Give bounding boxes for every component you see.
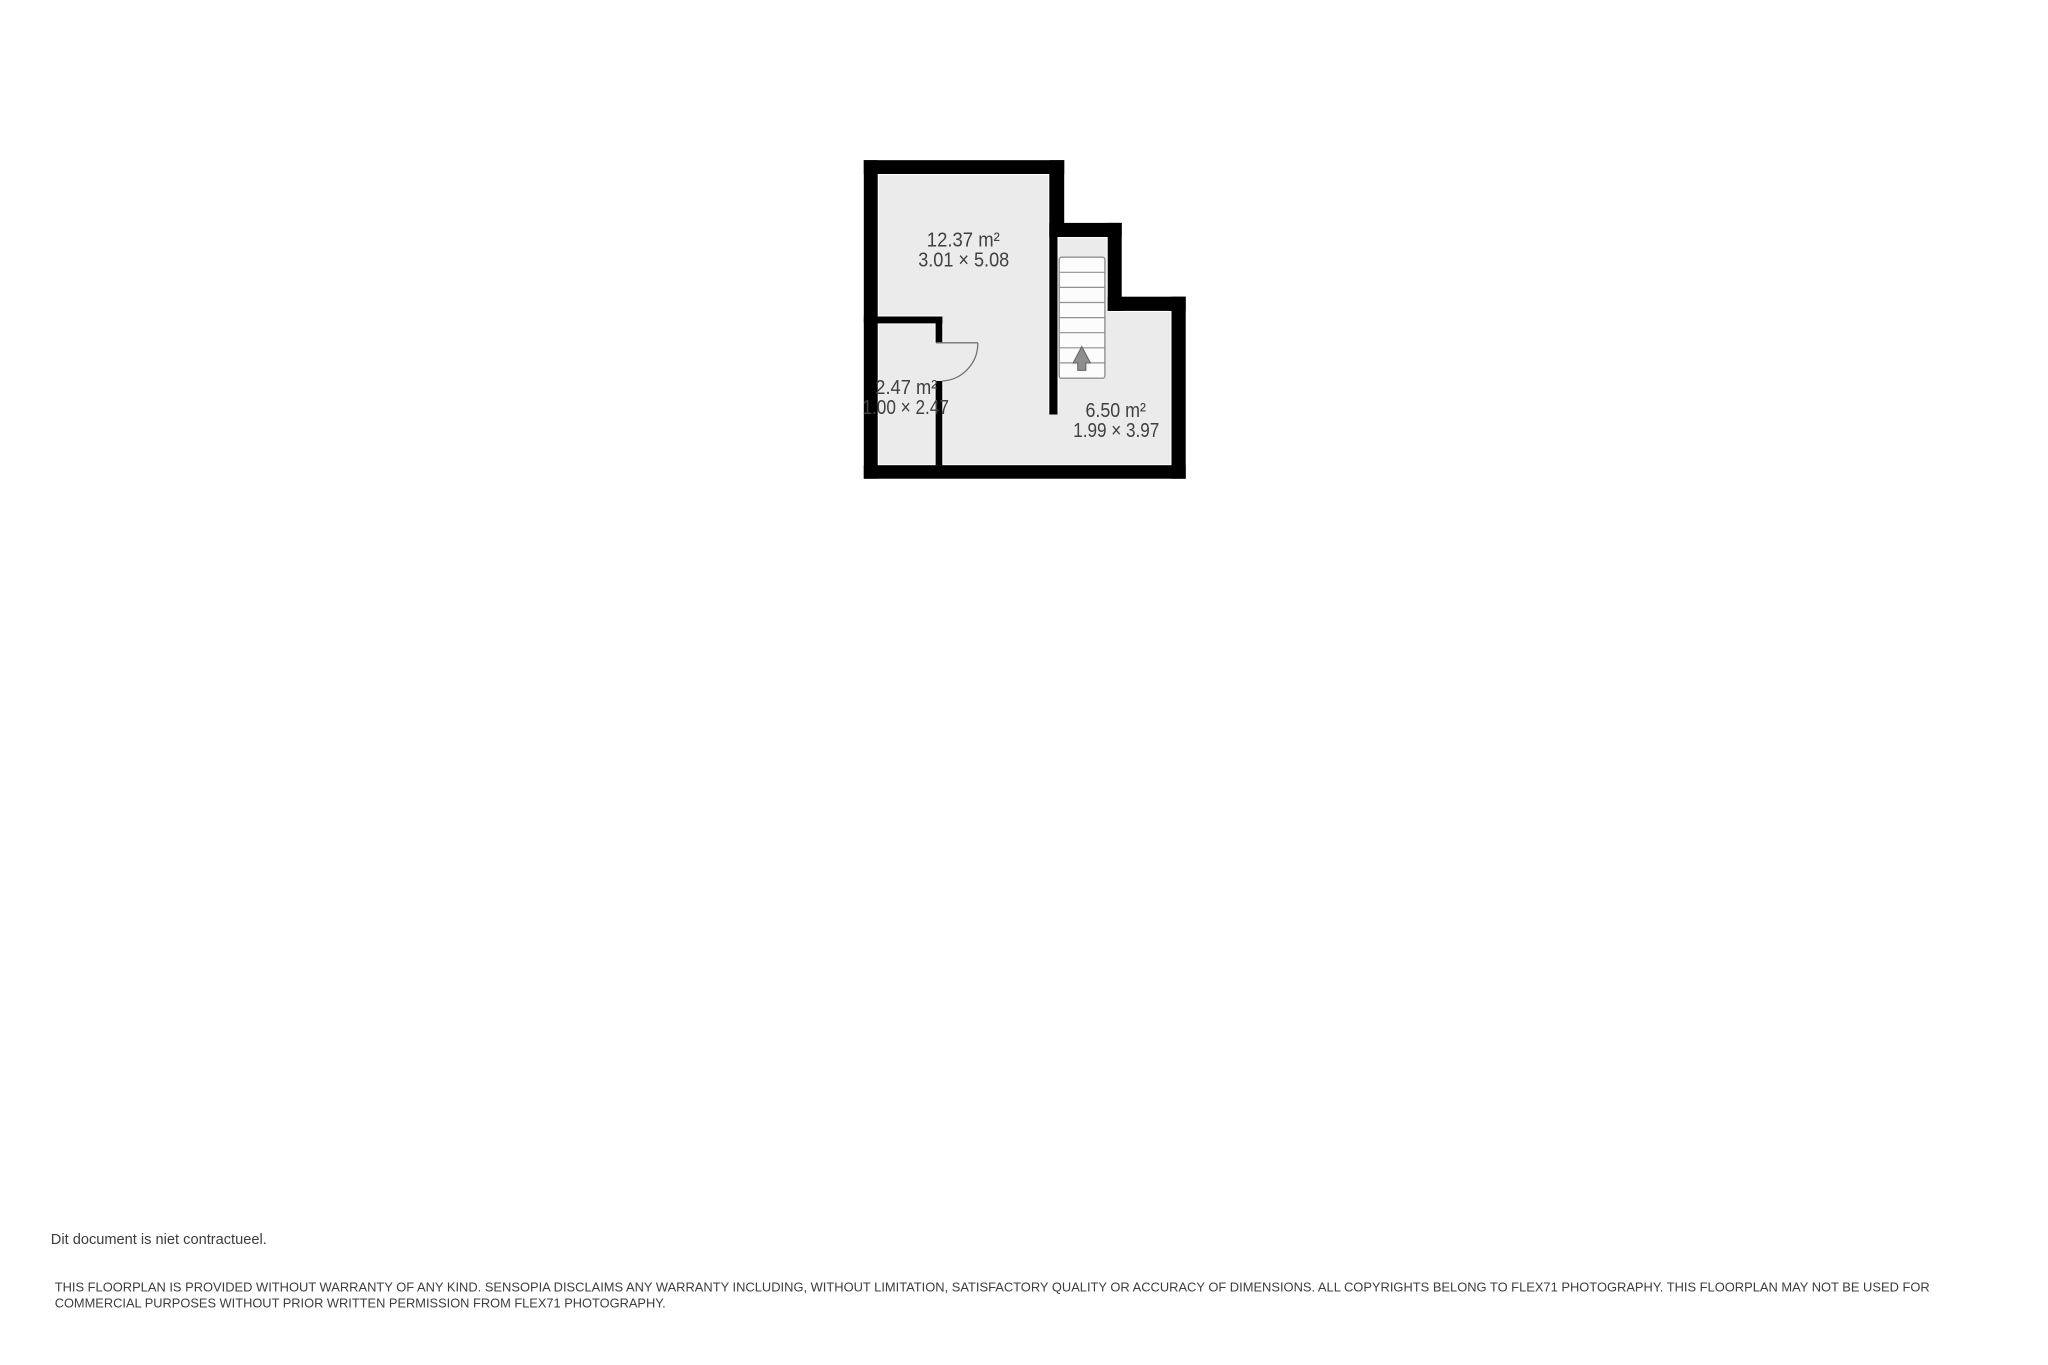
svg-text:2.47 m²: 2.47 m² (875, 377, 937, 399)
svg-text:3.01 × 5.08: 3.01 × 5.08 (918, 249, 1009, 271)
svg-text:THIS FLOORPLAN IS PROVIDED WIT: THIS FLOORPLAN IS PROVIDED WITHOUT WARRA… (55, 1280, 1930, 1295)
svg-text:COMMERCIAL PURPOSES WITHOUT PR: COMMERCIAL PURPOSES WITHOUT PRIOR WRITTE… (55, 1295, 666, 1310)
svg-text:6.50 m²: 6.50 m² (1085, 400, 1146, 422)
svg-text:1.00 × 2.47: 1.00 × 2.47 (862, 397, 949, 419)
svg-text:Dit document is niet contractu: Dit document is niet contractueel. (51, 1231, 267, 1248)
svg-text:1.99 × 3.97: 1.99 × 3.97 (1073, 420, 1159, 442)
svg-text:12.37 m²: 12.37 m² (927, 229, 1000, 251)
